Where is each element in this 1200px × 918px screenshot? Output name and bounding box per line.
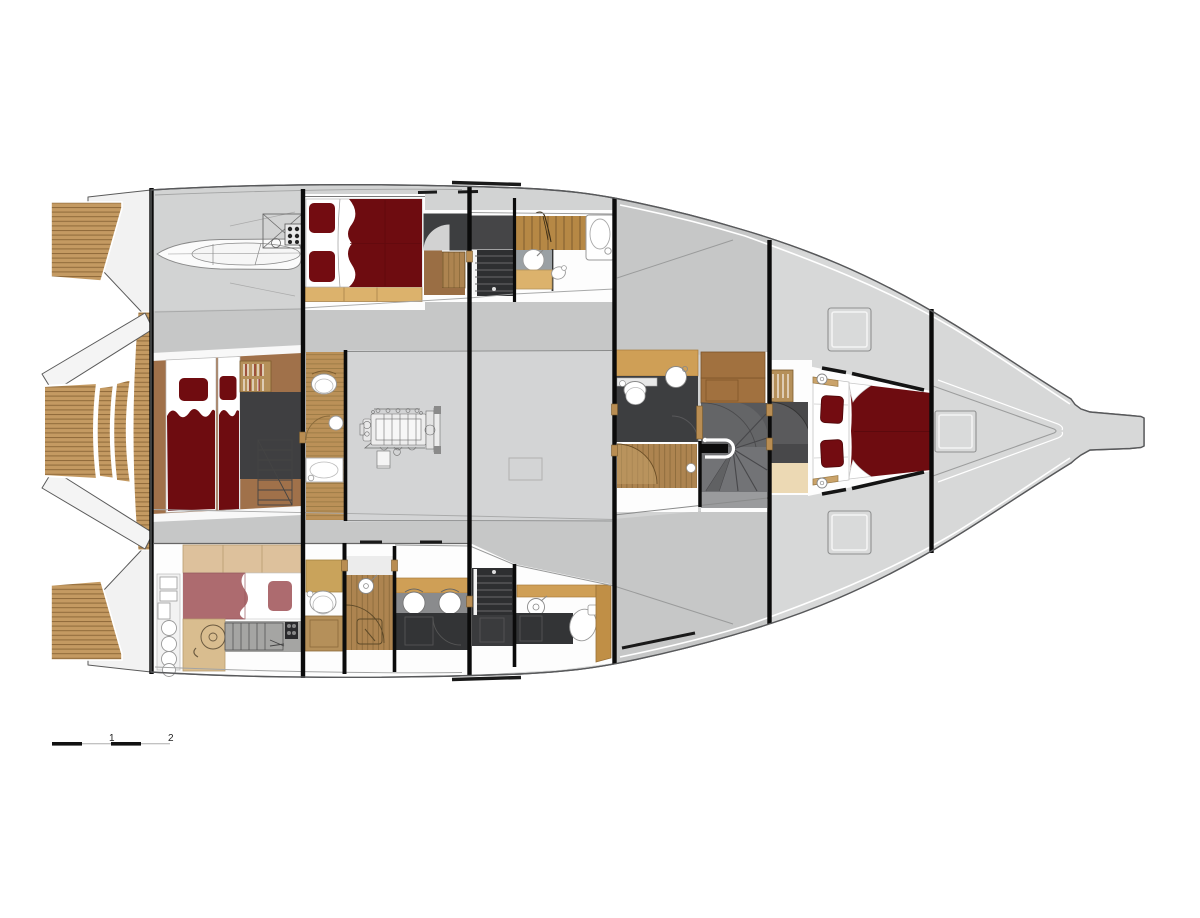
svg-text:1: 1 <box>109 733 115 744</box>
svg-text:2: 2 <box>168 733 174 744</box>
